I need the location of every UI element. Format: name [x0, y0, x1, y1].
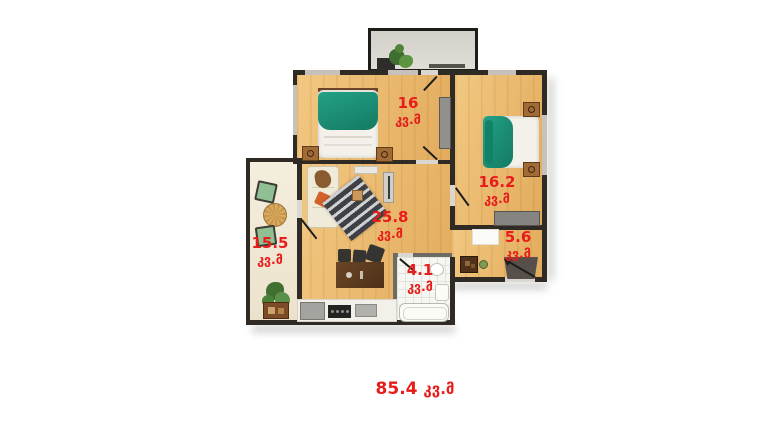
- window: [388, 70, 418, 75]
- shadow-bottom: [252, 325, 455, 333]
- room-area-unit: კვ.მ: [381, 112, 435, 127]
- tv-icon: [388, 176, 390, 199]
- total-area-value: 85.4: [376, 379, 418, 399]
- cooktop-icon: [328, 305, 351, 318]
- room-area-value: 25.8: [363, 208, 417, 226]
- stool-icon: [479, 260, 488, 269]
- room-area-unit: კვ.მ: [393, 279, 447, 294]
- bathtub-icon: [399, 303, 449, 322]
- bed-sheet-fold: [324, 136, 372, 138]
- nightstand-icon: [523, 102, 540, 117]
- room-area-unit: კვ.მ: [470, 191, 524, 206]
- total-area-unit: კვ.მ: [423, 380, 454, 398]
- tv-stand-icon: [383, 172, 394, 203]
- room-area-unit: კვ.მ: [491, 246, 545, 261]
- plant-icon: [395, 44, 404, 53]
- room-area-unit: კვ.მ: [243, 252, 297, 267]
- desk-item: [465, 261, 470, 266]
- wardrobe-icon: [494, 211, 540, 226]
- bed-pillow: [485, 120, 493, 164]
- burner: [346, 310, 349, 313]
- room-area-value: 4.1: [393, 261, 447, 279]
- room-area-value: 16: [381, 94, 435, 112]
- door-opening: [416, 160, 438, 164]
- room-area-label-hallway: 5.6 კვ.მ: [491, 228, 545, 261]
- shadow-right: [547, 78, 554, 280]
- window: [305, 70, 340, 75]
- wicker-table-icon: [263, 203, 287, 227]
- window: [293, 85, 297, 135]
- plant-icon: [399, 55, 413, 68]
- balcony-ledge: [429, 64, 465, 68]
- room-area-label-balcony-left: 15.5 კვ.მ: [243, 234, 297, 267]
- bed-sheet-fold: [324, 144, 372, 146]
- nightstand-icon: [302, 146, 319, 161]
- desk-item: [471, 264, 475, 268]
- storage-shelf-icon: [263, 302, 289, 319]
- lounge-chair-icon: [254, 180, 278, 204]
- room-area-unit: კვ.მ: [363, 226, 417, 241]
- burner: [336, 310, 339, 313]
- bed-blanket: [318, 92, 378, 130]
- shadow-hall-bottom: [452, 282, 547, 290]
- wall-shelf-icon: [354, 166, 378, 174]
- bathtub-inner: [403, 307, 447, 320]
- fridge-icon: [300, 302, 325, 320]
- room-area-value: 15.5: [243, 234, 297, 252]
- wall: [450, 257, 455, 322]
- burner: [341, 310, 344, 313]
- shelf-item: [268, 307, 275, 314]
- total-area-label: 85.4 კვ.მ: [330, 379, 500, 399]
- kitchen-sink-icon: [355, 304, 377, 317]
- door-opening: [297, 200, 302, 218]
- room-area-value: 16.2: [470, 173, 524, 191]
- wall: [297, 162, 302, 322]
- room-area-label-bedroom-top-left: 16 კვ.მ: [381, 94, 435, 127]
- door-opening: [450, 185, 455, 206]
- room-area-label-bedroom-right: 16.2 კვ.მ: [470, 173, 524, 206]
- nightstand-icon: [523, 162, 540, 177]
- floor-plan-page: { "plan": { "unit_label": "კვ.მ", "total…: [0, 0, 770, 433]
- door-opening: [398, 253, 413, 257]
- tableware: [346, 272, 352, 278]
- room-area-label-bathroom: 4.1 კვ.მ: [393, 261, 447, 294]
- window: [488, 70, 516, 75]
- floor-plan: 16 კვ.მ 16.2 კვ.მ 25.8 კვ.მ 15.5 კვ.მ 5.…: [0, 0, 770, 433]
- window: [542, 115, 547, 175]
- wall: [246, 320, 302, 325]
- nightstand-icon: [376, 147, 393, 162]
- wall: [246, 158, 302, 162]
- dining-table-icon: [336, 262, 384, 288]
- double-bed-icon: [318, 90, 378, 158]
- desk-icon: [460, 256, 478, 273]
- tableware: [360, 271, 363, 279]
- coffee-table-icon: [352, 190, 363, 201]
- burner: [331, 310, 334, 313]
- room-area-value: 5.6: [491, 228, 545, 246]
- double-bed-icon: [483, 116, 539, 168]
- wardrobe-icon: [439, 97, 451, 149]
- shelf-item: [278, 308, 284, 314]
- chair-icon: [338, 249, 351, 262]
- room-area-label-living-room: 25.8 კვ.მ: [363, 208, 417, 241]
- door-opening: [421, 70, 438, 75]
- top-balcony: [368, 28, 478, 72]
